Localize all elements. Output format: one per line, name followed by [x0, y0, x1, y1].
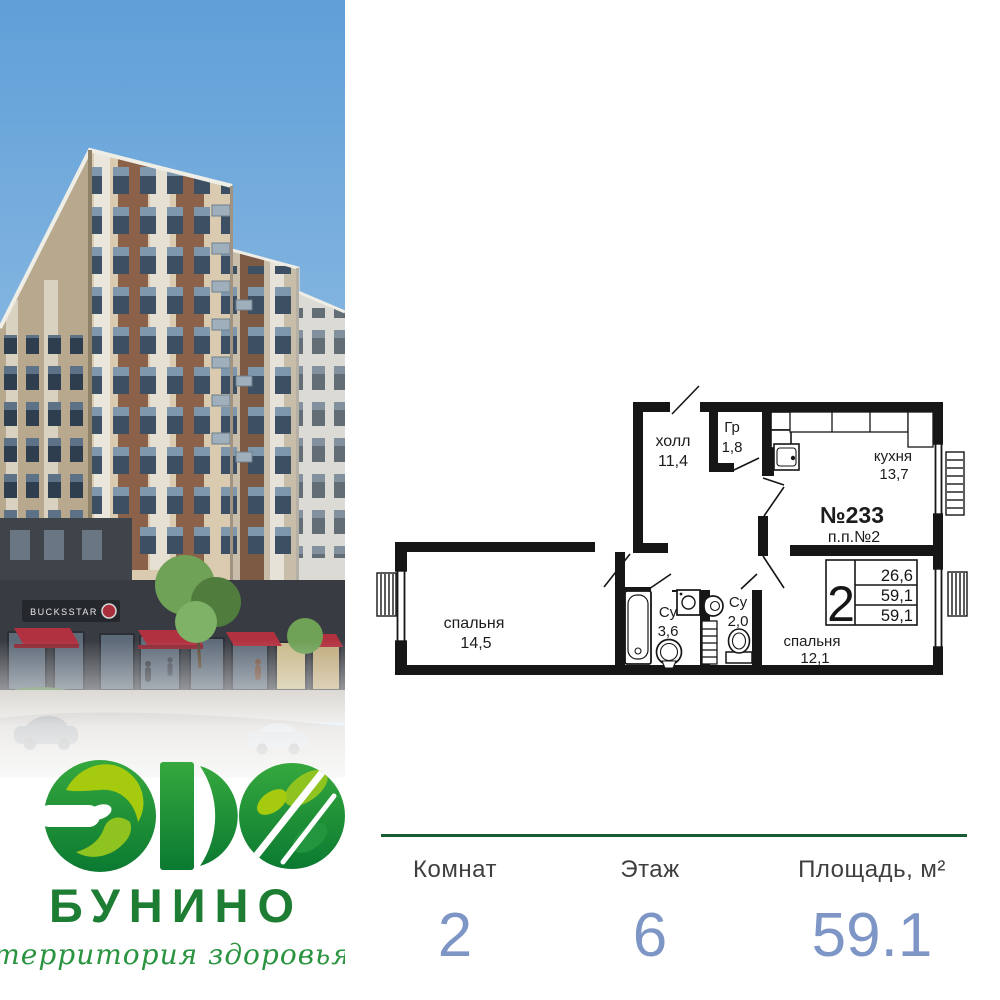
room-area-kitchen: 13,7	[879, 466, 908, 483]
kitchen-sink-icon	[774, 444, 799, 470]
sign-logo-icon	[102, 604, 116, 618]
room-area-wardrobe: 1,8	[722, 439, 743, 456]
stat-rooms-value: 2	[355, 900, 555, 971]
room-label-bath-1: Су	[659, 604, 678, 621]
radiator	[946, 452, 964, 515]
toilet-icon	[726, 629, 752, 663]
stat-floor: Этаж 6	[550, 856, 750, 971]
room-label-wardrobe: Гр	[724, 419, 740, 436]
building-photo: BUCKSSTAR	[0, 0, 345, 1000]
apartment-number: №233	[820, 502, 884, 528]
stat-area-label: Площадь, м²	[742, 856, 1000, 884]
logo-eco-mark: ЭКО	[38, 760, 345, 872]
room-area-bath-1: 3,6	[658, 623, 679, 640]
stat-floor-value: 6	[550, 900, 750, 971]
radiator	[377, 573, 396, 616]
sink-icon	[703, 596, 723, 616]
radiator	[948, 572, 967, 616]
room-label-bedroom-2: спальня	[784, 633, 841, 650]
room-area-hall: 11,4	[658, 453, 688, 470]
room-label-kitchen: кухня	[874, 448, 912, 465]
room-area-bedroom-1: 14,5	[460, 635, 491, 652]
apartment-note: п.п.№2	[828, 529, 880, 546]
listing-card[interactable]: BUCKSSTAR	[0, 0, 1000, 1000]
table-rooms-count: 2	[827, 576, 855, 632]
sink-icon	[657, 640, 682, 669]
floor-plan: 2 26,6 59,1 59,1 холл 11,4 Гр 1,8 кухня …	[350, 360, 990, 690]
window	[933, 443, 943, 515]
window	[933, 568, 943, 648]
table-value: 26,6	[881, 567, 913, 585]
room-area-bath-2: 2,0	[728, 613, 749, 630]
duct-shaft	[771, 412, 791, 448]
table-value: 59,1	[881, 587, 913, 605]
brand-name: БУНИНО	[49, 879, 303, 932]
stat-area-value: 59.1	[742, 900, 1000, 971]
table-value: 59,1	[881, 607, 913, 625]
stat-rooms-label: Комнат	[355, 856, 555, 884]
kitchen-counter	[790, 412, 933, 447]
door-swing	[604, 386, 784, 589]
storefront-sign: BUCKSSTAR	[22, 600, 120, 622]
window	[395, 570, 407, 642]
storefront-sign-text: BUCKSSTAR	[30, 607, 98, 617]
room-area-bedroom-2: 12,1	[800, 650, 829, 667]
brand-tagline: территория здоровья	[0, 938, 345, 971]
towel-ladder-icon	[702, 621, 717, 664]
room-label-bedroom-1: спальня	[444, 615, 505, 632]
room-label-hall: холл	[655, 433, 690, 450]
bathtub-icon	[625, 591, 651, 664]
room-label-bath-2: Су	[729, 594, 748, 611]
washer-icon	[677, 590, 700, 615]
stat-floor-label: Этаж	[550, 856, 750, 884]
stats-divider	[381, 834, 967, 837]
stat-area: Площадь, м² 59.1	[742, 856, 1000, 971]
stat-rooms: Комнат 2	[355, 856, 555, 971]
